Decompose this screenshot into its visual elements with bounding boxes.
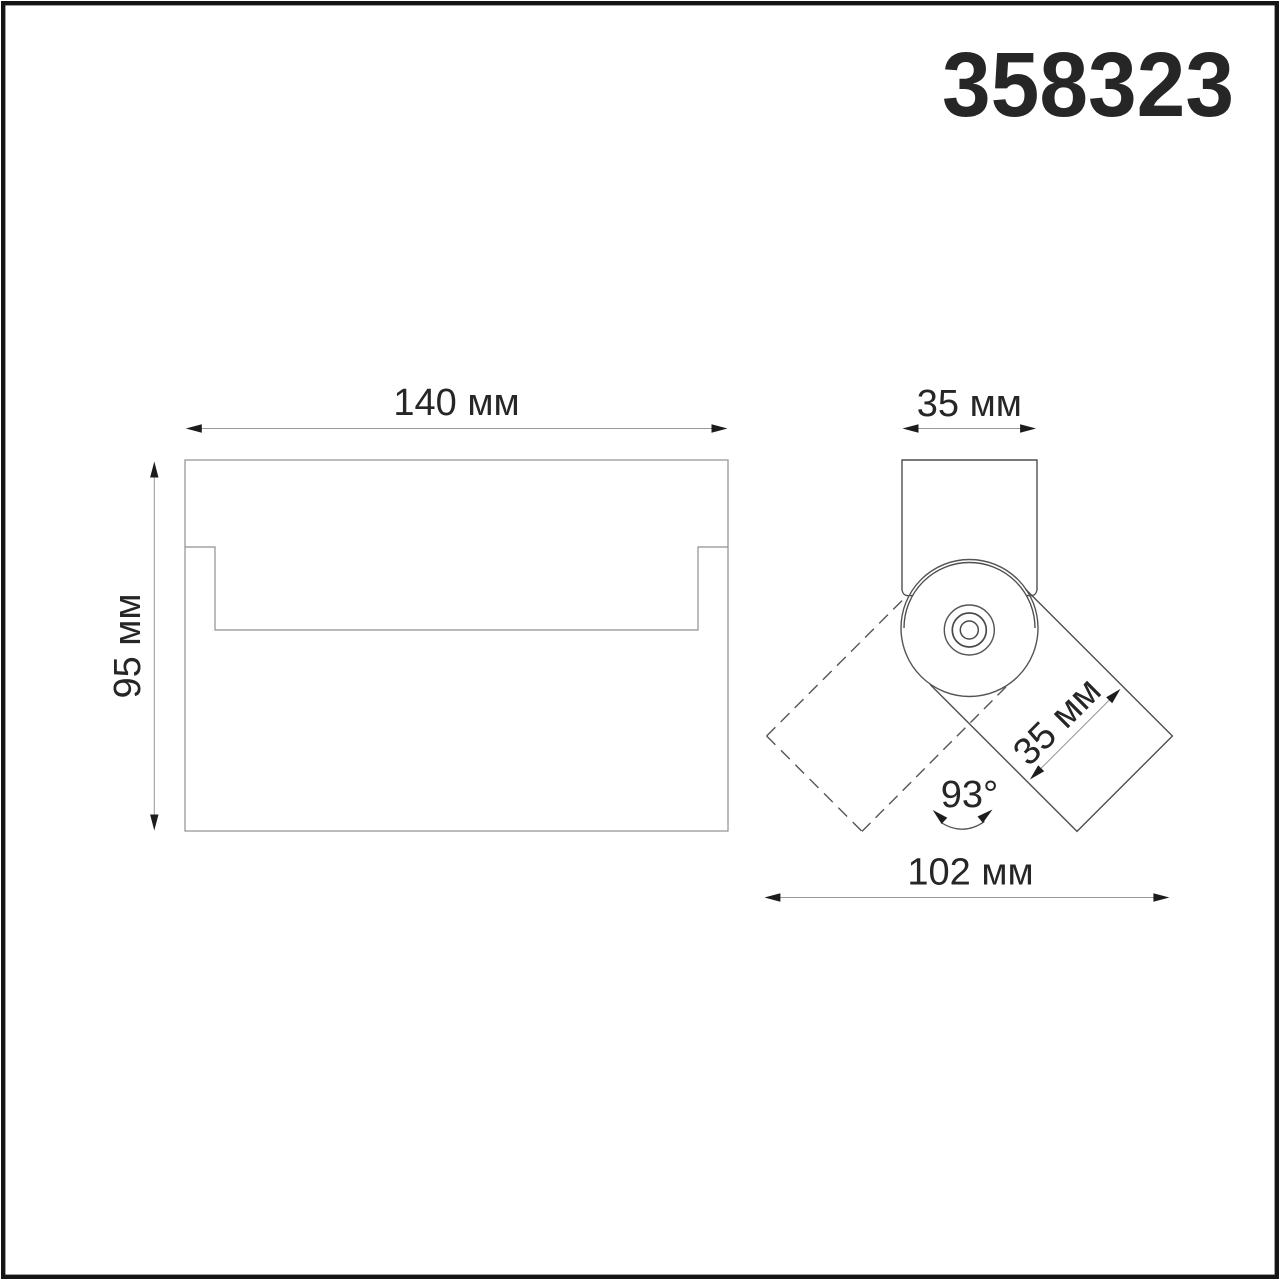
svg-text:358323: 358323: [942, 34, 1234, 136]
svg-text:95 мм: 95 мм: [107, 593, 149, 698]
svg-text:35 мм: 35 мм: [917, 383, 1022, 425]
svg-text:102 мм: 102 мм: [907, 852, 1033, 894]
svg-text:140 мм: 140 мм: [393, 382, 519, 424]
svg-text:93°: 93°: [941, 774, 998, 816]
